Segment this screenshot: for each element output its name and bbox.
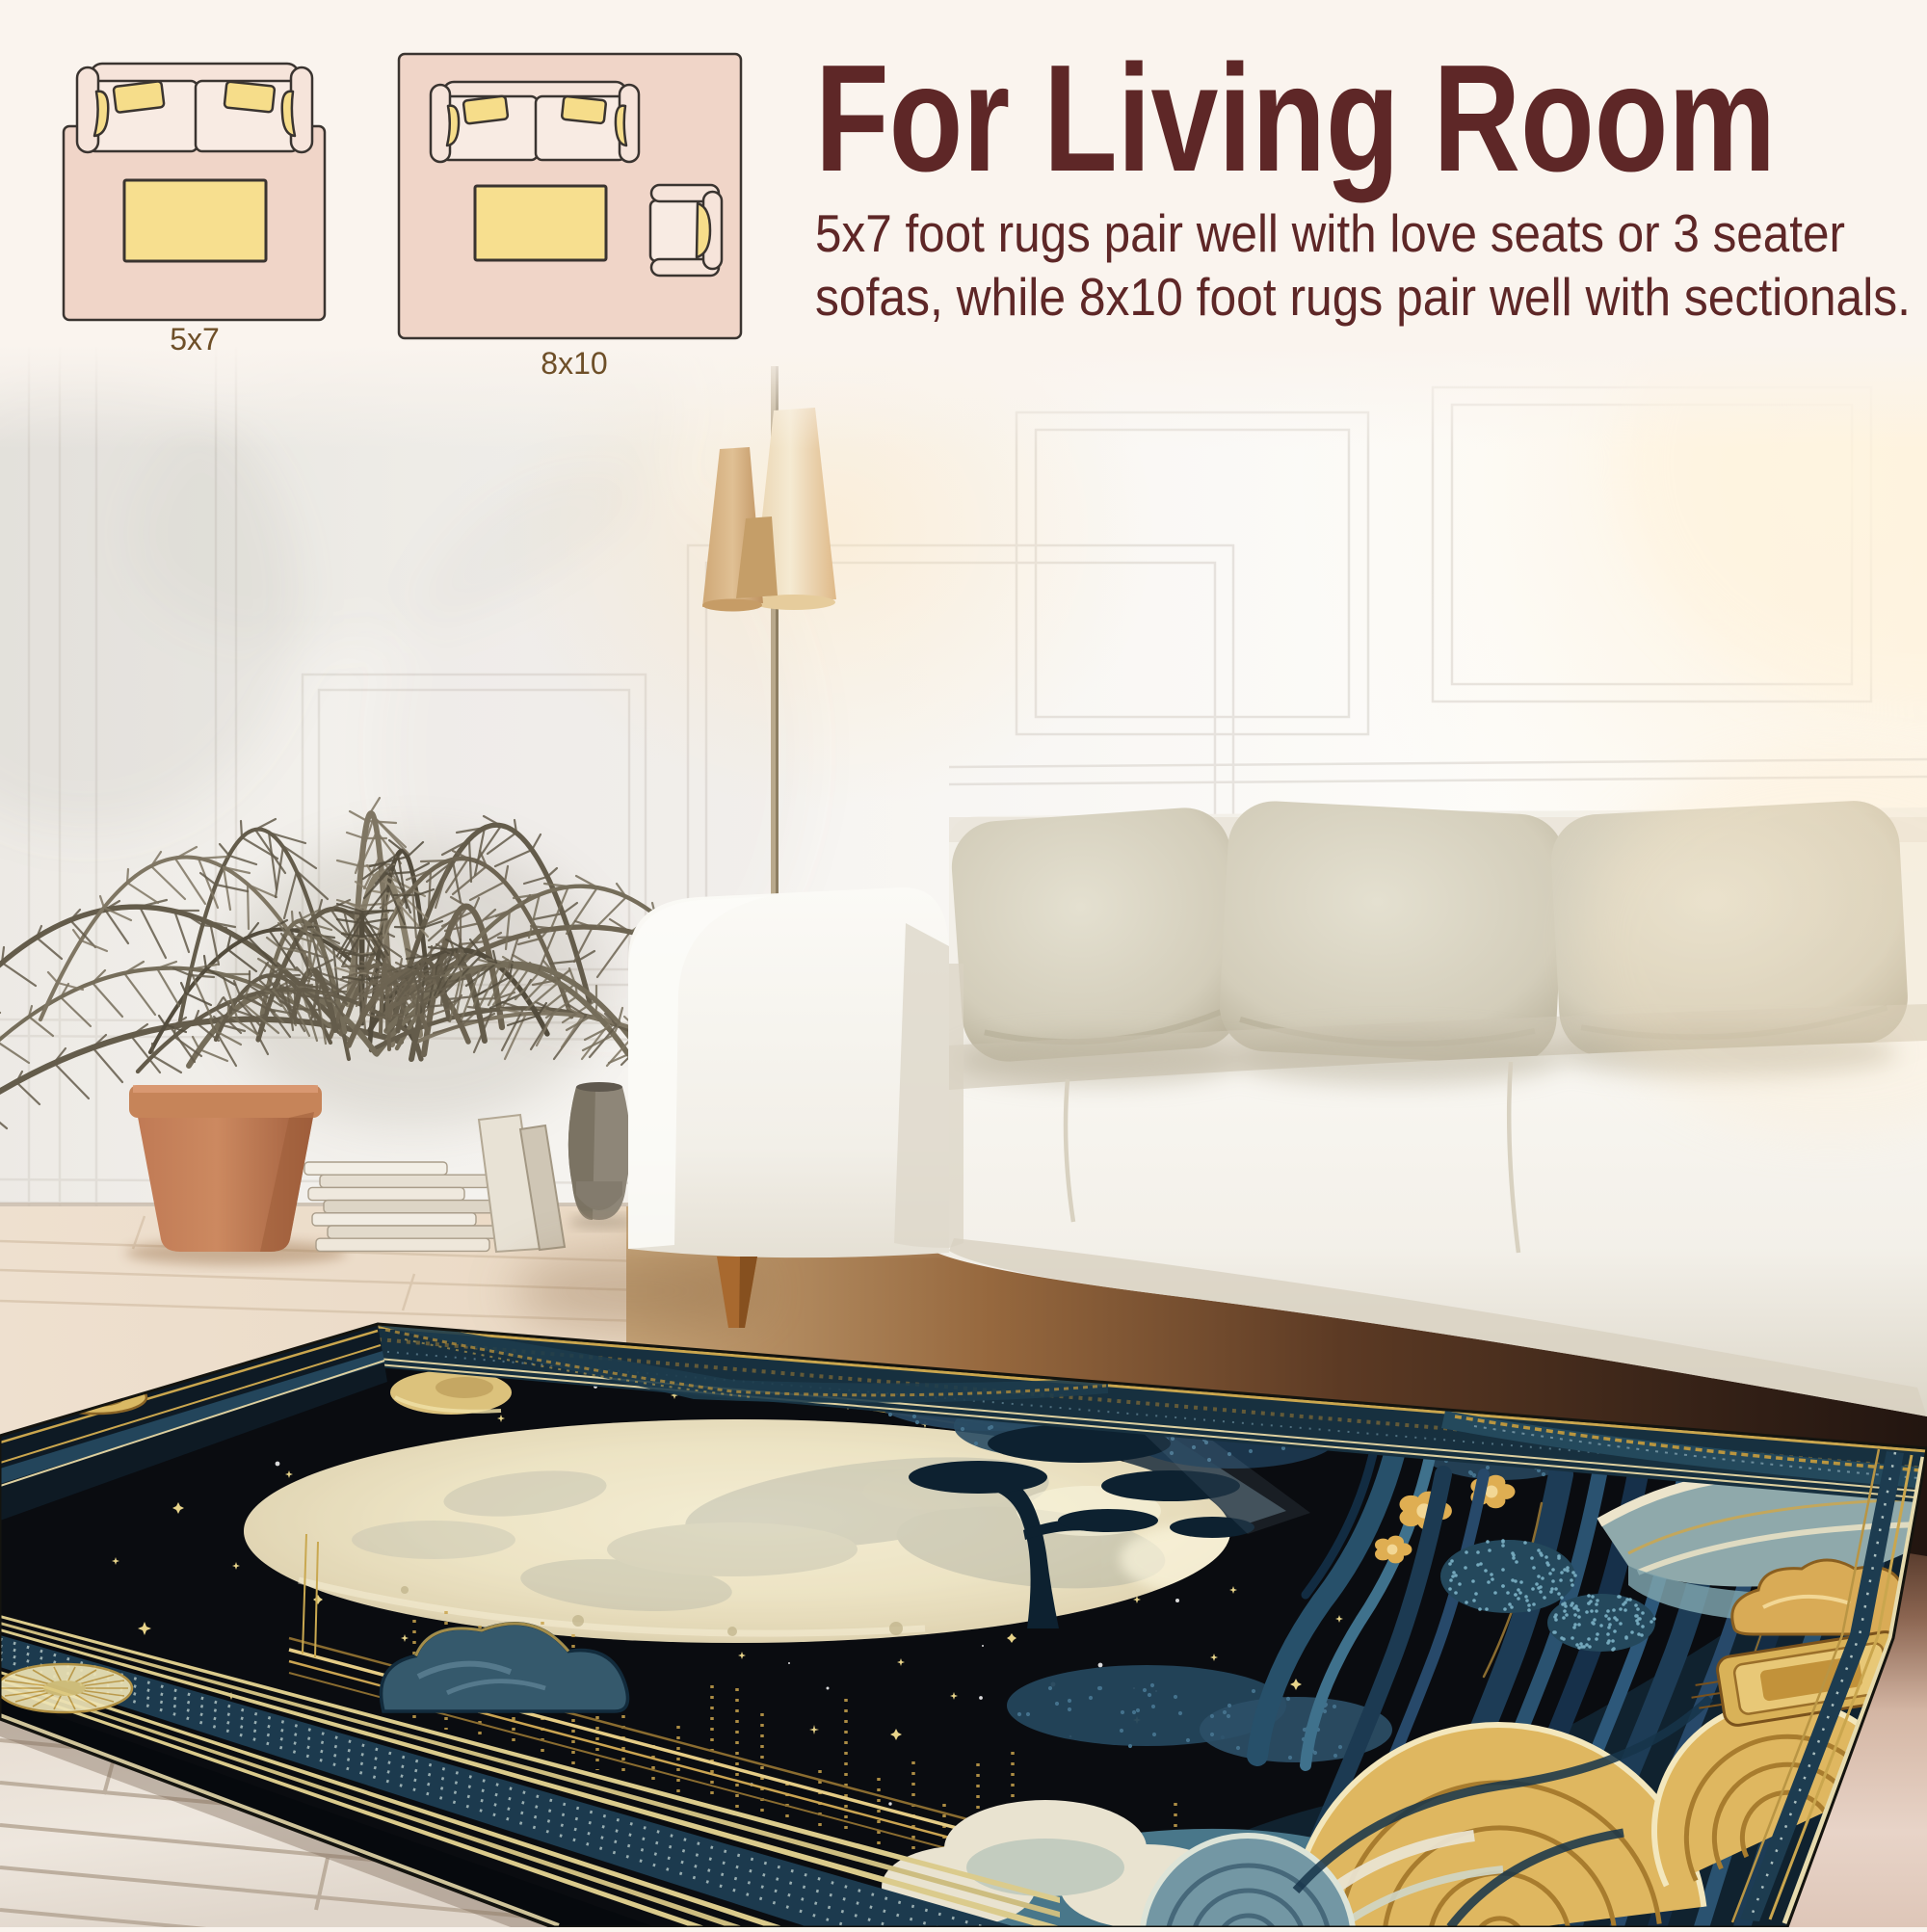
svg-text:5x7: 5x7 bbox=[170, 322, 220, 357]
svg-text:8x10: 8x10 bbox=[541, 346, 607, 381]
svg-text:For Living Room: For Living Room bbox=[815, 34, 1776, 203]
svg-text:5x7 foot rugs pair well with l: 5x7 foot rugs pair well with love seats … bbox=[815, 203, 1845, 263]
svg-text:sofas, while 8x10 foot rugs pa: sofas, while 8x10 foot rugs pair well wi… bbox=[815, 267, 1911, 327]
